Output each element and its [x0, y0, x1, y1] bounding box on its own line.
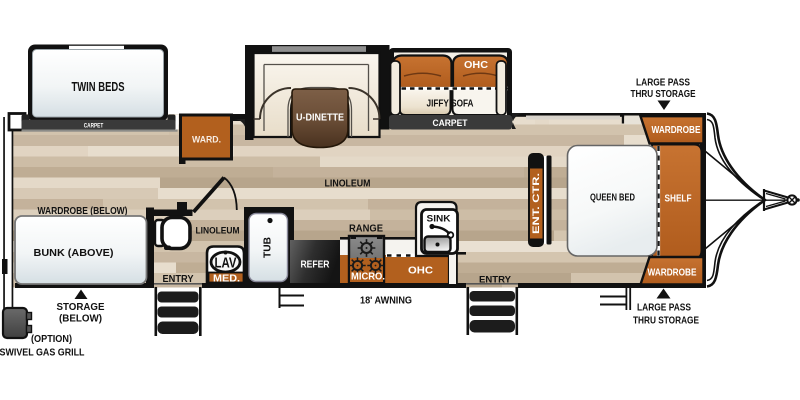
svg-text:STORAGE: STORAGE — [57, 301, 105, 313]
svg-text:U-DINETTE: U-DINETTE — [296, 112, 344, 124]
svg-text:SWIVEL GAS GRILL: SWIVEL GAS GRILL — [0, 347, 85, 359]
svg-text:LARGE PASS: LARGE PASS — [637, 302, 691, 314]
svg-text:LARGE PASS: LARGE PASS — [636, 77, 690, 89]
svg-text:LINOLEUM: LINOLEUM — [325, 179, 371, 190]
svg-text:TWIN BEDS: TWIN BEDS — [72, 80, 125, 94]
svg-text:CARPET: CARPET — [433, 118, 468, 128]
svg-text:ENTRY: ENTRY — [163, 274, 194, 285]
svg-text:MED.: MED. — [213, 273, 240, 285]
svg-text:ENTRY: ENTRY — [479, 275, 512, 286]
svg-text:(OPTION): (OPTION) — [31, 333, 72, 345]
svg-text:SINK: SINK — [427, 214, 452, 224]
svg-text:QUEEN BED: QUEEN BED — [590, 192, 635, 204]
svg-text:THRU STORAGE: THRU STORAGE — [633, 315, 699, 327]
svg-text:OHC: OHC — [408, 265, 433, 277]
svg-text:RANGE: RANGE — [349, 224, 383, 235]
svg-text:LINOLEUM: LINOLEUM — [196, 226, 240, 237]
svg-text:OHC: OHC — [464, 60, 488, 71]
svg-text:WARD.: WARD. — [192, 135, 221, 146]
svg-text:SHELF: SHELF — [665, 193, 692, 205]
svg-text:TUB: TUB — [262, 237, 274, 258]
svg-text:18' AWNING: 18' AWNING — [360, 295, 412, 307]
svg-text:JIFFY SOFA: JIFFY SOFA — [427, 98, 474, 110]
svg-text:(BELOW): (BELOW) — [59, 313, 102, 325]
svg-text:WARDROBE: WARDROBE — [648, 268, 697, 279]
svg-text:CARPET: CARPET — [84, 122, 104, 129]
svg-text:THRU STORAGE: THRU STORAGE — [631, 88, 696, 100]
svg-text:MICRO.: MICRO. — [351, 271, 385, 283]
svg-text:REFER: REFER — [301, 260, 331, 271]
svg-text:LAV: LAV — [215, 256, 237, 272]
svg-text:BUNK (ABOVE): BUNK (ABOVE) — [34, 247, 114, 259]
svg-text:ENT. CTR.: ENT. CTR. — [531, 173, 542, 234]
svg-text:WARDROBE: WARDROBE — [652, 125, 701, 136]
